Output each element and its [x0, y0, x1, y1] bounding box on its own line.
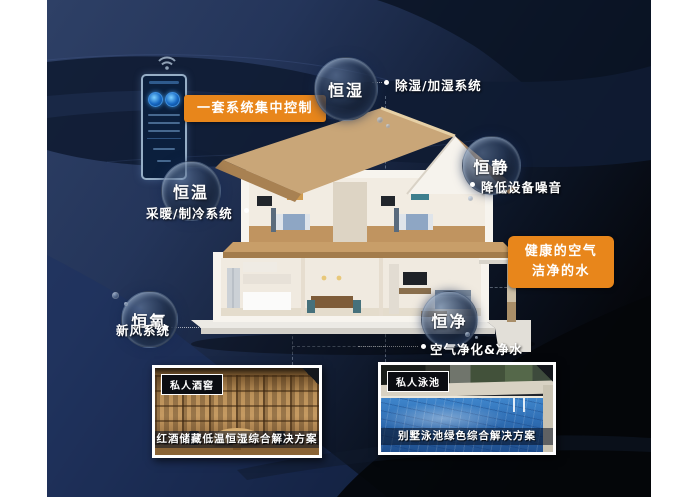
wine-cellar-photo: 私人酒窖 红酒储藏低温恒湿综合解决方案 [155, 368, 319, 455]
dot-purity [421, 344, 426, 349]
bubble-purity-label: 恒净 [431, 308, 467, 332]
panel-dial-right [165, 92, 180, 107]
mini-bubble [112, 292, 119, 299]
panel-dial-left [148, 92, 163, 107]
mini-bubble [377, 117, 383, 123]
feature-temperature: 采暖/制冷系统 [146, 203, 233, 222]
panel-row [148, 130, 180, 132]
feature-oxygen: 新风系统 [116, 320, 170, 339]
pool-card-tag: 私人泳池 [387, 371, 449, 392]
mini-bubble [465, 332, 470, 337]
bubble-humidity-label: 恒湿 [328, 77, 364, 101]
mini-bubble [468, 196, 473, 201]
panel-row [148, 114, 180, 116]
dot-humidity [384, 80, 389, 85]
pool-card: 私人泳池 别墅泳池绿色综合解决方案 [378, 362, 556, 455]
bubble-temperature-label: 恒温 [173, 179, 209, 203]
wine-cellar-card: 私人酒窖 红酒储藏低温恒湿综合解决方案 [152, 365, 322, 458]
panel-row [157, 160, 171, 162]
panel-row [153, 148, 175, 150]
mini-bubble [386, 124, 390, 128]
wifi-icon [157, 55, 177, 71]
bubble-quiet-label: 恒静 [473, 154, 509, 178]
dot-temperature [244, 208, 249, 213]
wine-card-tag: 私人酒窖 [161, 374, 223, 395]
healthy-air-water-callout: 健康的空气 洁净的水 [508, 236, 614, 288]
feature-humidity: 除湿/加湿系统 [395, 75, 482, 94]
panel-divider [147, 138, 181, 139]
pool-photo: 私人泳池 别墅泳池绿色综合解决方案 [381, 365, 553, 452]
feature-purity: 空气净化&净水 [430, 339, 523, 358]
card-corner-fold [302, 368, 319, 385]
dot-quiet [470, 182, 475, 187]
dot-oxygen [163, 325, 168, 330]
pool-card-caption: 别墅泳池绿色综合解决方案 [381, 428, 553, 445]
callout-line2: 洁净的水 [518, 262, 604, 282]
card-corner-fold [536, 365, 553, 382]
feature-quiet: 降低设备噪音 [481, 177, 562, 196]
bubble-humidity: 恒湿 [314, 57, 378, 121]
callout-line1: 健康的空气 [518, 242, 604, 262]
smart-panel-header [149, 81, 179, 84]
pool-ladder [513, 398, 525, 412]
mini-bubble [124, 302, 128, 306]
smart-home-poster: 一套系统集中控制 恒湿 除湿/加湿系统 恒静 降低设备噪音 恒温 采暖/制冷系统… [0, 0, 700, 497]
wine-card-caption: 红酒储藏低温恒湿综合解决方案 [155, 431, 319, 448]
panel-row [148, 122, 180, 124]
central-control-label: 一套系统集中控制 [184, 95, 326, 122]
